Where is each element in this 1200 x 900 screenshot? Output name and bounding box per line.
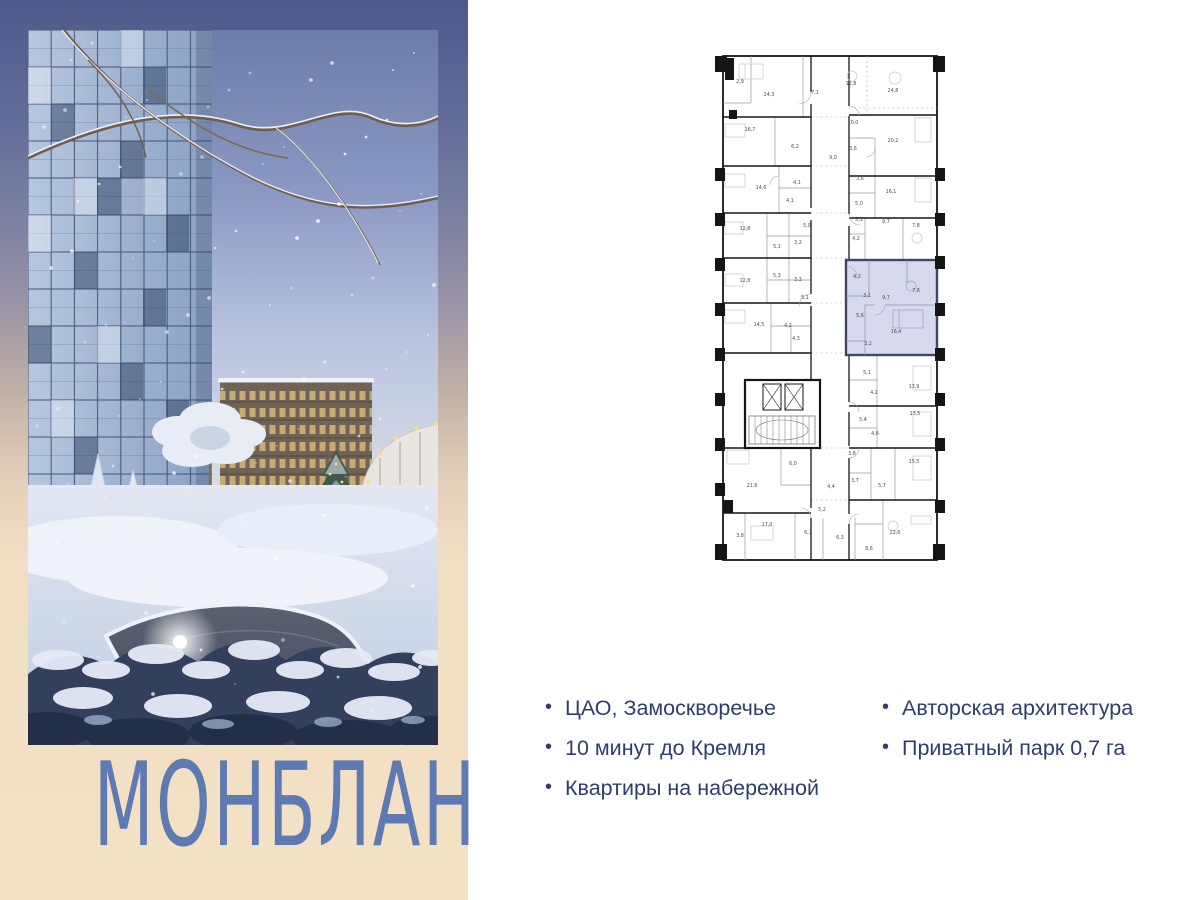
room-area-label: 9,7 bbox=[882, 219, 890, 225]
ad-banner: МОНБЛАН bbox=[0, 0, 1200, 900]
room-area-label: 5,0 bbox=[803, 223, 811, 229]
room-area-label: 3,2 bbox=[864, 341, 872, 347]
room-area-label: 5,0 bbox=[855, 201, 863, 207]
room-area-label: 4,4 bbox=[827, 484, 835, 490]
room-area-label: 4,6 bbox=[871, 431, 879, 437]
room-area-label: 12,8 bbox=[740, 278, 751, 284]
room-area-label: 7,1 bbox=[811, 90, 819, 96]
room-area-label: 5,1 bbox=[855, 217, 863, 223]
room-area-label: 12,8 bbox=[846, 81, 857, 87]
room-area-label: 9,0 bbox=[829, 155, 837, 161]
feature-item: • Квартиры на набережной bbox=[545, 769, 819, 809]
glass-tower bbox=[28, 30, 212, 550]
bullet-dot: • bbox=[545, 696, 552, 719]
room-area-label: 7,8 bbox=[912, 223, 920, 229]
room-area-label: 3,6 bbox=[849, 146, 857, 152]
room-area-label: 3,8 bbox=[736, 533, 744, 539]
feature-item: • Авторская архитектура bbox=[882, 689, 1133, 729]
room-area-label: 12,8 bbox=[740, 226, 751, 232]
room-area-label: 17,0 bbox=[762, 522, 773, 528]
room-area-label: 5,7 bbox=[878, 483, 886, 489]
room-area-label: 20,2 bbox=[888, 138, 899, 144]
feature-item: • 10 минут до Кремля bbox=[545, 729, 819, 769]
room-area-label: 16,4 bbox=[891, 329, 902, 335]
room-area-label: 4,2 bbox=[852, 236, 860, 242]
room-area-label: 21,8 bbox=[747, 483, 758, 489]
feature-text: Авторская архитектура bbox=[902, 696, 1133, 721]
brand-panel: МОНБЛАН bbox=[0, 0, 468, 900]
room-area-label: 5,6 bbox=[856, 313, 864, 319]
room-area-label: 3,3 bbox=[794, 277, 802, 283]
room-area-label: 24,8 bbox=[888, 88, 899, 94]
feature-text: Квартиры на набережной bbox=[565, 776, 819, 801]
room-area-label: 3,1 bbox=[863, 293, 871, 299]
room-area-label: 16,7 bbox=[745, 127, 756, 133]
room-area-label: 3,2 bbox=[794, 240, 802, 246]
room-area-label: 2,9 bbox=[736, 79, 744, 85]
room-area-label: 14,6 bbox=[756, 185, 767, 191]
room-area-label: 3,8 bbox=[848, 451, 856, 457]
elevator-core bbox=[745, 380, 820, 448]
bullet-dot: • bbox=[882, 736, 889, 759]
features-column-2: • Авторская архитектура • Приватный парк… bbox=[842, 689, 1133, 769]
room-area-label: 16,1 bbox=[886, 189, 897, 195]
room-area-label: 7,8 bbox=[912, 288, 920, 294]
feature-text: ЦАО, Замоскворечье bbox=[565, 696, 776, 721]
room-area-label: 5,1 bbox=[773, 244, 781, 250]
feature-item: • Приватный парк 0,7 га bbox=[882, 729, 1133, 769]
room-area-label: 22,6 bbox=[890, 530, 901, 536]
bullet-dot: • bbox=[545, 736, 552, 759]
feature-text: 10 минут до Кремля bbox=[565, 736, 766, 761]
room-area-label: 13,5 bbox=[910, 411, 921, 417]
room-area-label: 8,6 bbox=[865, 546, 873, 552]
brand-wordmark: МОНБЛАН bbox=[94, 742, 375, 870]
room-area-label: 4,2 bbox=[853, 274, 861, 280]
room-area-label: 6,2 bbox=[791, 144, 799, 150]
room-area-label: 9,7 bbox=[882, 295, 890, 301]
room-area-label: 5,2 bbox=[818, 507, 826, 513]
room-area-label: 5,1 bbox=[863, 370, 871, 376]
room-area-label: 14,5 bbox=[754, 322, 765, 328]
room-area-label: 10,0 bbox=[848, 120, 859, 126]
room-area-label: 5,4 bbox=[859, 417, 867, 423]
bullet-dot: • bbox=[545, 776, 552, 799]
hero-photo bbox=[28, 30, 438, 745]
room-area-label: 3,7 bbox=[851, 478, 859, 484]
room-area-label: 4,1 bbox=[786, 198, 794, 204]
room-area-label: 24,3 bbox=[764, 92, 775, 98]
room-area-label: 5,1 bbox=[801, 295, 809, 301]
feature-text: Приватный парк 0,7 га bbox=[902, 736, 1125, 761]
room-area-label: 15,5 bbox=[909, 459, 920, 465]
feature-item: • ЦАО, Замоскворечье bbox=[545, 689, 819, 729]
room-area-label: 5,3 bbox=[773, 273, 781, 279]
room-area-label: 4,3 bbox=[792, 336, 800, 342]
bullet-dot: • bbox=[882, 696, 889, 719]
features-column-1: • ЦАО, Замоскворечье • 10 минут до Кремл… bbox=[505, 689, 819, 809]
floor-plan: 2,924,37,112,824,816,76,210,09,03,620,21… bbox=[715, 48, 945, 568]
room-area-label: 4,2 bbox=[870, 390, 878, 396]
room-area-label: 6,7 bbox=[804, 530, 812, 536]
room-area-label: 4,1 bbox=[793, 180, 801, 186]
room-area-label: 6,3 bbox=[836, 535, 844, 541]
room-area-label: 6,0 bbox=[789, 461, 797, 467]
room-area-label: 3,6 bbox=[856, 176, 864, 182]
room-area-label: 4,2 bbox=[784, 323, 792, 329]
room-area-label: 13,9 bbox=[909, 384, 920, 390]
